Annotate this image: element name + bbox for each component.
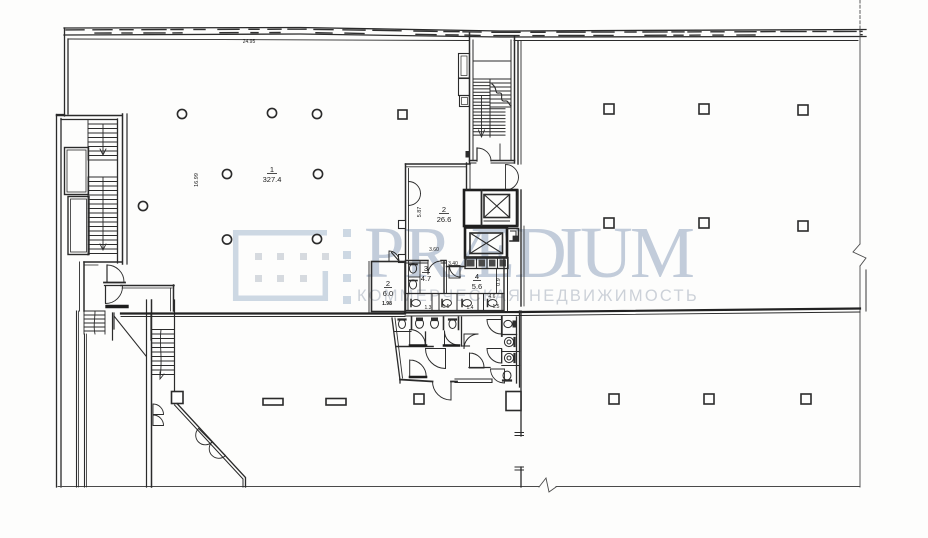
svg-text:1.4: 1.4 (467, 305, 474, 311)
svg-text:3.40: 3.40 (448, 261, 458, 267)
svg-text:5.87: 5.87 (417, 207, 423, 218)
svg-text:3.60: 3.60 (429, 247, 439, 253)
svg-text:0.9: 0.9 (496, 278, 502, 286)
svg-text:M: M (630, 212, 695, 293)
svg-text:6.0: 6.0 (383, 289, 393, 298)
svg-text:327.4: 327.4 (263, 175, 282, 184)
svg-text:4.6: 4.6 (489, 294, 496, 300)
svg-text:1.5: 1.5 (493, 304, 500, 310)
svg-text:26.6: 26.6 (437, 215, 452, 224)
svg-text:1.5: 1.5 (443, 304, 450, 310)
svg-text:4.7: 4.7 (421, 274, 431, 283)
svg-text:Æ: Æ (450, 212, 515, 293)
svg-text:5.6: 5.6 (472, 282, 482, 291)
svg-text:16.99: 16.99 (194, 173, 200, 187)
svg-text:U: U (580, 212, 633, 293)
svg-text:2: 2 (386, 279, 390, 288)
svg-text:1.3: 1.3 (425, 305, 432, 311)
svg-text:2: 2 (442, 205, 446, 214)
svg-text:4: 4 (475, 272, 479, 281)
svg-text:3: 3 (424, 264, 428, 273)
svg-text:24.95: 24.95 (243, 39, 256, 45)
svg-text:1.98: 1.98 (382, 301, 392, 307)
svg-text:1: 1 (270, 165, 274, 174)
